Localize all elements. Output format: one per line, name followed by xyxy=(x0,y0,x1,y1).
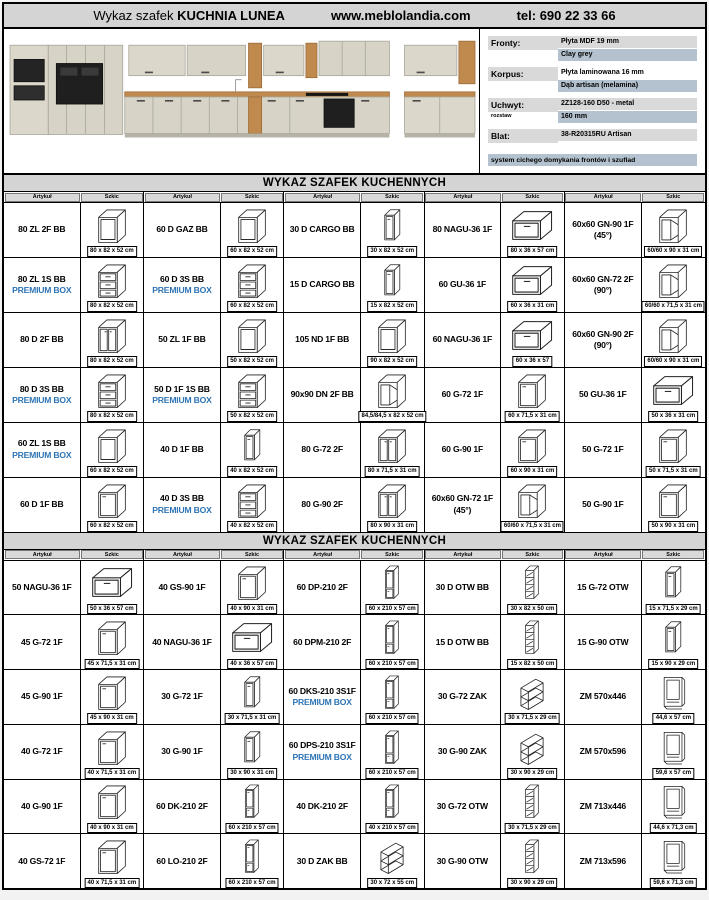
article-cell: 80 D 3S BBPREMIUM BOX xyxy=(4,368,81,422)
sketch-cell: 60 x 36 x 31 cm xyxy=(501,258,564,312)
article-code: 30 G-72 1F xyxy=(161,691,202,702)
article-cell: 105 ND 1F BB xyxy=(284,313,361,367)
article-code: 60 NAGU-36 1F xyxy=(433,334,493,345)
article-code: ZM 570x446 xyxy=(580,691,626,702)
sketch-cell: 40 x 82 x 52 cm xyxy=(221,423,284,477)
article-code: 40 D 3S BB xyxy=(160,493,204,504)
dimensions-label: 40 x 90 x 31 cm xyxy=(87,823,137,834)
article-cell: 50 G-90 1F xyxy=(565,478,642,532)
dimensions-label: 60 x 82 x 52 cm xyxy=(87,521,137,532)
dimensions-label: 90 x 82 x 52 cm xyxy=(367,356,417,367)
dimensions-label: 60/60 x 90 x 31 cm xyxy=(644,246,702,257)
column-header-article: Artykuł xyxy=(425,193,500,202)
column-header-sketch: Szkic xyxy=(502,193,564,202)
premium-box-label: PREMIUM BOX xyxy=(292,752,351,763)
cabinet-entry: 60 G-90 1F60 x 90 x 31 cm xyxy=(425,423,565,477)
sketch-cell: 84,5/84,5 x 82 x 52 cm xyxy=(361,368,424,422)
article-code: 105 ND 1F BB xyxy=(295,334,349,345)
sketch-cell: 30 x 90 x 29 cm xyxy=(501,725,564,779)
dimensions-label: 60/60 x 71,5 x 31 cm xyxy=(501,521,564,532)
article-cell: 50 G-72 1F xyxy=(565,423,642,477)
article-cell: 30 D CARGO BB xyxy=(284,203,361,257)
article-code: 15 D OTW BB xyxy=(436,637,489,648)
cabinet-entry: 60 DKS-210 3S1FPREMIUM BOX60 x 210 x 57 … xyxy=(284,670,424,724)
column-header-article: Artykuł xyxy=(145,550,220,559)
sketch-cell: 40 x 90 x 31 cm xyxy=(221,561,284,615)
cabinet-entry: 60 DPM-210 2F60 x 210 x 57 cm xyxy=(284,615,424,669)
sketch-cell: 60 x 90 x 31 cm xyxy=(501,423,564,477)
article-code: 50 GU-36 1F xyxy=(579,389,626,400)
dimensions-label: 30 x 90 x 29 cm xyxy=(508,878,558,889)
cabinet-entry: 40 NAGU-36 1F40 x 36 x 57 cm xyxy=(144,615,284,669)
article-code: 40 NAGU-36 1F xyxy=(152,637,212,648)
dimensions-label: 84,5/84,5 x 82 x 52 cm xyxy=(359,411,426,422)
article-cell: 30 D ZAK BB xyxy=(284,834,361,888)
dimensions-label: 60 x 36 x 31 cm xyxy=(508,301,558,312)
column-header-article: Artykuł xyxy=(285,193,360,202)
article-code: 30 D OTW BB xyxy=(436,582,489,593)
table-row: 40 G-72 1F40 x 71,5 x 31 cm30 G-90 1F30 … xyxy=(4,725,705,780)
article-code: 40 G-72 1F xyxy=(21,746,62,757)
cabinet-entry: 80 G-72 2F80 x 71,5 x 31 cm xyxy=(284,423,424,477)
article-code: 30 D ZAK BB xyxy=(297,856,348,867)
article-cell: 30 G-72 OTW xyxy=(425,780,502,834)
cabinet-entry: 30 G-72 ZAK30 x 71,5 x 29 cm xyxy=(425,670,565,724)
dimensions-label: 15 x 90 x 29 cm xyxy=(649,659,699,670)
sketch-cell: 60 x 210 x 57 cm xyxy=(221,780,284,834)
dimensions-label: 15 x 82 x 52 cm xyxy=(367,301,417,312)
dimensions-label: 44,6 x 71,3 cm xyxy=(650,823,696,834)
spec-label: Fronty: xyxy=(488,36,558,50)
cabinet-entry: 45 G-72 1F45 x 71,5 x 31 cm xyxy=(4,615,144,669)
dimensions-label: 60/60 x 90 x 31 cm xyxy=(644,356,702,367)
cabinet-entry: 80 NAGU-36 1F80 x 36 x 57 cm xyxy=(425,203,565,257)
sketch-cell: 44,6 x 71,3 cm xyxy=(642,780,705,834)
article-cell: 30 G-90 OTW xyxy=(425,834,502,888)
premium-box-label: PREMIUM BOX xyxy=(152,395,211,406)
table-row: 80 ZL 1S BBPREMIUM BOX80 x 82 x 52 cm60 … xyxy=(4,258,705,313)
table-row: 80 D 2F BB80 x 82 x 52 cm50 ZL 1F BB50 x… xyxy=(4,313,705,368)
sketch-cell: 40 x 210 x 57 cm xyxy=(361,780,424,834)
cabinet-sketch-icon xyxy=(375,427,409,464)
spec-value: 160 mm xyxy=(558,111,697,123)
article-cell: 80 G-72 2F xyxy=(284,423,361,477)
dimensions-label: 40 x 82 x 52 cm xyxy=(227,466,277,477)
dimensions-label: 45 x 90 x 31 cm xyxy=(87,713,137,724)
article-cell: 60x60 GN-90 1F(45°) xyxy=(565,203,642,257)
article-code: 80 D 3S BB xyxy=(20,384,64,395)
article-cell: 40 D 1F BB xyxy=(144,423,221,477)
cabinet-sketch-icon xyxy=(95,317,129,354)
cabinet-entry: 60 NAGU-36 1F60 x 36 x 57 xyxy=(425,313,565,367)
document-canvas: Wykaz szafek KUCHNIA LUNEA www.mebloland… xyxy=(0,0,709,900)
sketch-cell: 59,6 x 71,3 cm xyxy=(642,834,705,888)
article-code: 40 GS-90 1F xyxy=(158,582,205,593)
cabinet-sketch-icon xyxy=(235,372,269,409)
article-code: 50 NAGU-36 1F xyxy=(12,582,72,593)
sketch-cell: 90 x 82 x 52 cm xyxy=(361,313,424,367)
dimensions-label: 60 x 71,5 x 31 cm xyxy=(505,411,560,422)
document-header: Wykaz szafek KUCHNIA LUNEA www.mebloland… xyxy=(4,4,705,29)
article-cell: 60 D 1F BB xyxy=(4,478,81,532)
cabinet-sketch-icon xyxy=(383,564,401,601)
article-cell: 40 G-72 1F xyxy=(4,725,81,779)
column-header-pair: ArtykułSzkic xyxy=(4,192,144,202)
cabinet-entry: 105 ND 1F BB90 x 82 x 52 cm xyxy=(284,313,424,367)
cabinet-entry: 60x60 GN-90 2F(90°)60/60 x 90 x 31 cm xyxy=(565,313,705,367)
dimensions-label: 80 x 90 x 31 cm xyxy=(367,521,417,532)
article-cell: 15 G-72 OTW xyxy=(565,561,642,615)
dimensions-label: 44,6 x 57 cm xyxy=(653,713,694,724)
cabinet-sketch-icon xyxy=(95,207,129,244)
cabinet-sketch-icon xyxy=(663,619,684,656)
article-code: 60x60 GN-90 2F xyxy=(572,329,633,340)
cabinet-sketch-icon xyxy=(242,427,263,464)
sketch-cell: 60 x 210 x 57 cm xyxy=(361,670,424,724)
article-code: 40 G-90 1F xyxy=(21,801,62,812)
article-cell: 50 ZL 1F BB xyxy=(144,313,221,367)
column-header-sketch: Szkic xyxy=(361,193,423,202)
premium-box-label: PREMIUM BOX xyxy=(152,505,211,516)
cabinet-sketch-icon xyxy=(515,427,549,464)
dimensions-label: 30 x 82 x 50 cm xyxy=(508,604,558,615)
dimensions-label: 60 x 210 x 57 cm xyxy=(366,604,419,615)
column-header-sketch: Szkic xyxy=(221,193,283,202)
cabinet-entry: 40 G-90 1F40 x 90 x 31 cm xyxy=(4,780,144,834)
sketch-cell: 40 x 82 x 52 cm xyxy=(221,478,284,532)
dimensions-label: 30 x 82 x 52 cm xyxy=(367,246,417,257)
article-cell: 60 LO-210 2F xyxy=(144,834,221,888)
spec-label: Uchwyt: xyxy=(488,98,558,112)
article-code: 60 DPS-210 3S1F xyxy=(289,740,356,751)
cabinet-entry: 30 D OTW BB30 x 82 x 50 cm xyxy=(425,561,565,615)
dimensions-label: 60 x 210 x 57 cm xyxy=(366,768,419,779)
sketch-cell: 80 x 82 x 52 cm xyxy=(81,368,144,422)
cabinet-entry: 60 DPS-210 3S1FPREMIUM BOX60 x 210 x 57 … xyxy=(284,725,424,779)
article-cell: 60 D 3S BBPREMIUM BOX xyxy=(144,258,221,312)
cabinet-entry: 80 D 2F BB80 x 82 x 52 cm xyxy=(4,313,144,367)
article-cell: 50 D 1F 1S BBPREMIUM BOX xyxy=(144,368,221,422)
column-header-pair: ArtykułSzkic xyxy=(144,192,284,202)
cabinet-sketch-icon xyxy=(382,207,403,244)
cabinet-entry: 60 D GAZ BB60 x 82 x 52 cm xyxy=(144,203,284,257)
sketch-cell: 50 x 71,5 x 31 cm xyxy=(642,423,705,477)
dimensions-label: 45 x 71,5 x 31 cm xyxy=(85,659,140,670)
kitchen-render xyxy=(4,29,479,173)
table-body: 80 ZL 2F BB80 x 82 x 52 cm60 D GAZ BB60 … xyxy=(4,203,705,532)
cabinet-sketch-icon xyxy=(229,619,275,656)
article-code: 80 NAGU-36 1F xyxy=(433,224,493,235)
cabinet-entry: 80 D 3S BBPREMIUM BOX80 x 82 x 52 cm xyxy=(4,368,144,422)
sketch-cell: 30 x 82 x 50 cm xyxy=(501,561,564,615)
dimensions-label: 60 x 210 x 57 cm xyxy=(366,659,419,670)
spec-row-fronty: Fronty: Płyta MDF 19 mm Clay grey xyxy=(488,36,697,61)
column-header-sketch: Szkic xyxy=(81,193,143,202)
sketch-cell: 30 x 82 x 52 cm xyxy=(361,203,424,257)
sketch-cell: 40 x 71,5 x 31 cm xyxy=(81,725,144,779)
sketch-cell: 45 x 90 x 31 cm xyxy=(81,670,144,724)
cabinet-entry: ZM 570x44644,6 x 57 cm xyxy=(565,670,705,724)
cabinet-entry: 60 LO-210 2F60 x 210 x 57 cm xyxy=(144,834,284,888)
article-cell: 80 D 2F BB xyxy=(4,313,81,367)
column-header-pair: ArtykułSzkic xyxy=(284,192,424,202)
cabinet-sketch-icon xyxy=(509,262,555,299)
article-code: 50 D 1F 1S BB xyxy=(154,384,210,395)
cabinet-sketch-icon xyxy=(656,482,690,519)
article-cell: 45 G-90 1F xyxy=(4,670,81,724)
article-cell: 40 DK-210 2F xyxy=(284,780,361,834)
column-header-article: Artykuł xyxy=(565,193,641,202)
cabinet-sketch-icon xyxy=(383,619,401,656)
sketch-cell: 30 x 72 x 55 cm xyxy=(361,834,424,888)
article-code: 80 ZL 2F BB xyxy=(18,224,65,235)
cabinet-table-2: WYKAZ SZAFEK KUCHENNYCH ArtykułSzkicArty… xyxy=(4,532,705,889)
article-cell: 15 G-90 OTW xyxy=(565,615,642,669)
cabinet-entry: 60 G-72 1F60 x 71,5 x 31 cm xyxy=(425,368,565,422)
article-code: 15 G-90 OTW xyxy=(577,637,628,648)
spec-row-korpus: Korpus: Płyta laminowana 16 mm Dąb artis… xyxy=(488,67,697,92)
dimensions-label: 30 x 90 x 29 cm xyxy=(508,768,558,779)
cabinet-sketch-icon xyxy=(523,619,541,656)
sketch-cell: 15 x 82 x 52 cm xyxy=(361,258,424,312)
article-cell: ZM 570x446 xyxy=(565,670,642,724)
dimensions-label: 30 x 71,5 x 29 cm xyxy=(505,713,560,724)
cabinet-sketch-icon xyxy=(509,207,555,244)
article-cell: 60 DP-210 2F xyxy=(284,561,361,615)
cabinet-entry: 30 G-90 OTW30 x 90 x 29 cm xyxy=(425,834,565,888)
column-header-sketch: Szkic xyxy=(642,193,704,202)
article-cell: 60 G-72 1F xyxy=(425,368,502,422)
column-header-article: Artykuł xyxy=(5,550,80,559)
cabinet-sketch-icon xyxy=(242,729,263,766)
sketch-cell: 60 x 82 x 52 cm xyxy=(81,478,144,532)
sketch-cell: 44,6 x 57 cm xyxy=(642,670,705,724)
spec-label: Blat: xyxy=(488,129,558,143)
cabinet-sketch-icon xyxy=(515,482,549,519)
article-code: 30 G-90 1F xyxy=(161,746,202,757)
cabinet-entry: 60x60 GN-72 2F(90°)60/60 x 71,5 x 31 cm xyxy=(565,258,705,312)
article-code: 80 G-72 2F xyxy=(301,444,342,455)
sketch-cell: 60/60 x 90 x 31 cm xyxy=(642,203,705,257)
cabinet-entry: 80 G-90 2F80 x 90 x 31 cm xyxy=(284,478,424,532)
cabinet-sketch-icon xyxy=(95,619,129,656)
dimensions-label: 15 x 82 x 50 cm xyxy=(508,659,558,670)
article-code-line2: (45°) xyxy=(453,505,471,516)
cabinet-entry: 60 ZL 1S BBPREMIUM BOX60 x 82 x 52 cm xyxy=(4,423,144,477)
cabinet-entry: ZM 570x59659,6 x 57 cm xyxy=(565,725,705,779)
article-code: 60 D 1F BB xyxy=(20,499,63,510)
dimensions-label: 59,6 x 57 cm xyxy=(653,768,694,779)
cabinet-sketch-icon xyxy=(95,783,129,820)
page-title-prefix: Wykaz szafek xyxy=(93,8,173,23)
cabinet-sketch-icon xyxy=(515,729,549,766)
dimensions-label: 59,6 x 71,3 cm xyxy=(650,878,696,889)
premium-box-label: PREMIUM BOX xyxy=(292,697,351,708)
article-cell: 40 NAGU-36 1F xyxy=(144,615,221,669)
table-row: 40 GS-72 1F40 x 71,5 x 31 cm60 LO-210 2F… xyxy=(4,834,705,888)
dimensions-label: 50 x 36 x 31 cm xyxy=(649,411,699,422)
article-code: 60 DK-210 2F xyxy=(156,801,208,812)
article-code: 60 G-72 1F xyxy=(442,389,483,400)
article-code: ZM 570x596 xyxy=(580,746,626,757)
sketch-cell: 15 x 71,5 x 29 cm xyxy=(642,561,705,615)
article-code: 45 G-72 1F xyxy=(21,637,62,648)
cabinet-sketch-icon xyxy=(663,564,684,601)
dimensions-label: 40 x 71,5 x 31 cm xyxy=(85,878,140,889)
cabinet-sketch-icon xyxy=(95,838,129,875)
sketch-cell: 40 x 71,5 x 31 cm xyxy=(81,834,144,888)
cabinet-sketch-icon xyxy=(95,729,129,766)
cabinet-sketch-icon xyxy=(658,838,688,875)
column-header-article: Artykuł xyxy=(145,193,220,202)
article-cell: 40 GS-90 1F xyxy=(144,561,221,615)
article-cell: 40 G-90 1F xyxy=(4,780,81,834)
dimensions-label: 40 x 210 x 57 cm xyxy=(366,823,419,834)
cabinet-entry: 15 D OTW BB15 x 82 x 50 cm xyxy=(425,615,565,669)
article-code-line2: (90°) xyxy=(594,340,612,351)
cabinet-entry: 40 GS-90 1F40 x 90 x 31 cm xyxy=(144,561,284,615)
cabinet-entry: 30 D CARGO BB30 x 82 x 52 cm xyxy=(284,203,424,257)
article-code: 15 D CARGO BB xyxy=(290,279,355,290)
table-body: 50 NAGU-36 1F50 x 36 x 57 cm40 GS-90 1F4… xyxy=(4,561,705,889)
cabinet-sketch-icon xyxy=(658,674,688,711)
sketch-cell: 30 x 90 x 29 cm xyxy=(501,834,564,888)
article-code: 30 D CARGO BB xyxy=(290,224,355,235)
article-code: 30 G-72 ZAK xyxy=(438,691,487,702)
spec-value: Clay grey xyxy=(558,49,697,61)
column-header-article: Artykuł xyxy=(5,193,80,202)
sketch-cell: 15 x 82 x 50 cm xyxy=(501,615,564,669)
column-header-article: Artykuł xyxy=(565,550,641,559)
sketch-cell: 80 x 82 x 52 cm xyxy=(81,258,144,312)
sketch-cell: 40 x 36 x 57 cm xyxy=(221,615,284,669)
article-cell: 60 G-90 1F xyxy=(425,423,502,477)
article-code: ZM 713x596 xyxy=(580,856,626,867)
sketch-cell: 60 x 210 x 57 cm xyxy=(361,725,424,779)
cabinet-sketch-icon xyxy=(656,317,690,354)
article-code: 60x60 GN-72 2F xyxy=(572,274,633,285)
sketch-cell: 60 x 210 x 57 cm xyxy=(221,834,284,888)
dimensions-label: 80 x 82 x 52 cm xyxy=(87,356,137,367)
cabinet-entry: 40 GS-72 1F40 x 71,5 x 31 cm xyxy=(4,834,144,888)
article-code: ZM 713x446 xyxy=(580,801,626,812)
cabinet-sketch-icon xyxy=(89,564,135,601)
table-row: 45 G-72 1F45 x 71,5 x 31 cm40 NAGU-36 1F… xyxy=(4,615,705,670)
article-code: 60 LO-210 2F xyxy=(156,856,207,867)
sketch-cell: 60/60 x 71,5 x 31 cm xyxy=(642,258,705,312)
cabinet-sketch-icon xyxy=(235,482,269,519)
column-headers: ArtykułSzkicArtykułSzkicArtykułSzkicArty… xyxy=(4,192,705,203)
cabinet-entry: 50 D 1F 1S BBPREMIUM BOX50 x 82 x 52 cm xyxy=(144,368,284,422)
article-cell: 50 GU-36 1F xyxy=(565,368,642,422)
article-cell: 60 GU-36 1F xyxy=(425,258,502,312)
cabinet-sketch-icon xyxy=(383,783,401,820)
cabinet-sketch-icon xyxy=(523,838,541,875)
article-cell: 60 DPM-210 2F xyxy=(284,615,361,669)
column-header-sketch: Szkic xyxy=(502,550,564,559)
cabinet-sketch-icon xyxy=(658,729,688,766)
cabinet-sketch-icon xyxy=(243,783,261,820)
table-row: 80 D 3S BBPREMIUM BOX80 x 82 x 52 cm50 D… xyxy=(4,368,705,423)
article-cell: 30 G-72 1F xyxy=(144,670,221,724)
cabinet-entry: 15 G-90 OTW15 x 90 x 29 cm xyxy=(565,615,705,669)
cabinet-sketch-icon xyxy=(95,674,129,711)
article-cell: 30 G-72 ZAK xyxy=(425,670,502,724)
cabinet-entry: 15 G-72 OTW15 x 71,5 x 29 cm xyxy=(565,561,705,615)
cabinet-sketch-icon xyxy=(235,262,269,299)
article-cell: ZM 570x596 xyxy=(565,725,642,779)
cabinet-sketch-icon xyxy=(515,372,549,409)
cabinet-entry: 30 D ZAK BB30 x 72 x 55 cm xyxy=(284,834,424,888)
dimensions-label: 40 x 71,5 x 31 cm xyxy=(85,768,140,779)
article-code: 30 G-90 ZAK xyxy=(438,746,487,757)
cabinet-entry: 60 GU-36 1F60 x 36 x 31 cm xyxy=(425,258,565,312)
table-row: 40 G-90 1F40 x 90 x 31 cm60 DK-210 2F60 … xyxy=(4,780,705,835)
column-header-pair: ArtykułSzkic xyxy=(4,550,144,560)
cabinet-entry: 60 DK-210 2F60 x 210 x 57 cm xyxy=(144,780,284,834)
sketch-cell: 59,6 x 57 cm xyxy=(642,725,705,779)
article-code: 90x90 DN 2F BB xyxy=(291,389,354,400)
article-code: 40 D 1F BB xyxy=(160,444,203,455)
dimensions-label: 40 x 90 x 31 cm xyxy=(227,604,277,615)
sketch-cell: 60 x 210 x 57 cm xyxy=(361,561,424,615)
dimensions-label: 60 x 82 x 52 cm xyxy=(87,466,137,477)
table-row: 50 NAGU-36 1F50 x 36 x 57 cm40 GS-90 1F4… xyxy=(4,561,705,616)
column-header-pair: ArtykułSzkic xyxy=(425,550,565,560)
cabinet-sketch-icon xyxy=(243,838,261,875)
dimensions-label: 80 x 82 x 52 cm xyxy=(87,411,137,422)
cabinet-sketch-icon xyxy=(95,372,129,409)
sketch-cell: 40 x 90 x 31 cm xyxy=(81,780,144,834)
cabinet-entry: 30 G-72 OTW30 x 71,5 x 29 cm xyxy=(425,780,565,834)
article-cell: 30 D OTW BB xyxy=(425,561,502,615)
table-row: 45 G-90 1F45 x 90 x 31 cm30 G-72 1F30 x … xyxy=(4,670,705,725)
sketch-cell: 30 x 71,5 x 29 cm xyxy=(501,780,564,834)
dimensions-label: 60 x 90 x 31 cm xyxy=(508,466,558,477)
sketch-cell: 60 x 82 x 52 cm xyxy=(81,423,144,477)
article-cell: 45 G-72 1F xyxy=(4,615,81,669)
article-code: 30 G-72 OTW xyxy=(437,801,488,812)
sketch-cell: 50 x 90 x 31 cm xyxy=(642,478,705,532)
article-cell: 15 D OTW BB xyxy=(425,615,502,669)
cabinet-sketch-icon xyxy=(650,372,696,409)
cabinet-entry: 30 G-72 1F30 x 71,5 x 31 cm xyxy=(144,670,284,724)
article-code: 60 DKS-210 3S1F xyxy=(289,686,356,697)
sketch-cell: 60/60 x 71,5 x 31 cm xyxy=(501,478,564,532)
spec-value: Płyta MDF 19 mm xyxy=(558,36,697,48)
cabinet-sketch-icon xyxy=(235,317,269,354)
dimensions-label: 50 x 82 x 52 cm xyxy=(227,356,277,367)
page-title: Wykaz szafek KUCHNIA LUNEA xyxy=(93,8,285,23)
article-code: 40 GS-72 1F xyxy=(18,856,65,867)
dimensions-label: 80 x 82 x 52 cm xyxy=(87,301,137,312)
sketch-cell: 60 x 36 x 57 xyxy=(501,313,564,367)
article-cell: 60 ZL 1S BBPREMIUM BOX xyxy=(4,423,81,477)
article-code: 15 G-72 OTW xyxy=(577,582,628,593)
article-code: 60 GU-36 1F xyxy=(439,279,486,290)
premium-box-label: PREMIUM BOX xyxy=(152,285,211,296)
cabinet-table-1: WYKAZ SZAFEK KUCHENNYCH ArtykułSzkicArty… xyxy=(4,175,705,532)
spec-value: Płyta laminowana 16 mm xyxy=(558,67,697,79)
cabinet-sketch-icon xyxy=(95,427,129,464)
article-code: 60 G-90 1F xyxy=(442,444,483,455)
article-code: 50 ZL 1F BB xyxy=(158,334,205,345)
sketch-cell: 45 x 71,5 x 31 cm xyxy=(81,615,144,669)
cabinet-entry: 60x60 GN-72 1F(45°)60/60 x 71,5 x 31 cm xyxy=(425,478,565,532)
column-header-pair: ArtykułSzkic xyxy=(565,550,705,560)
table-title: WYKAZ SZAFEK KUCHENNYCH xyxy=(4,532,705,550)
column-header-article: Artykuł xyxy=(425,550,500,559)
